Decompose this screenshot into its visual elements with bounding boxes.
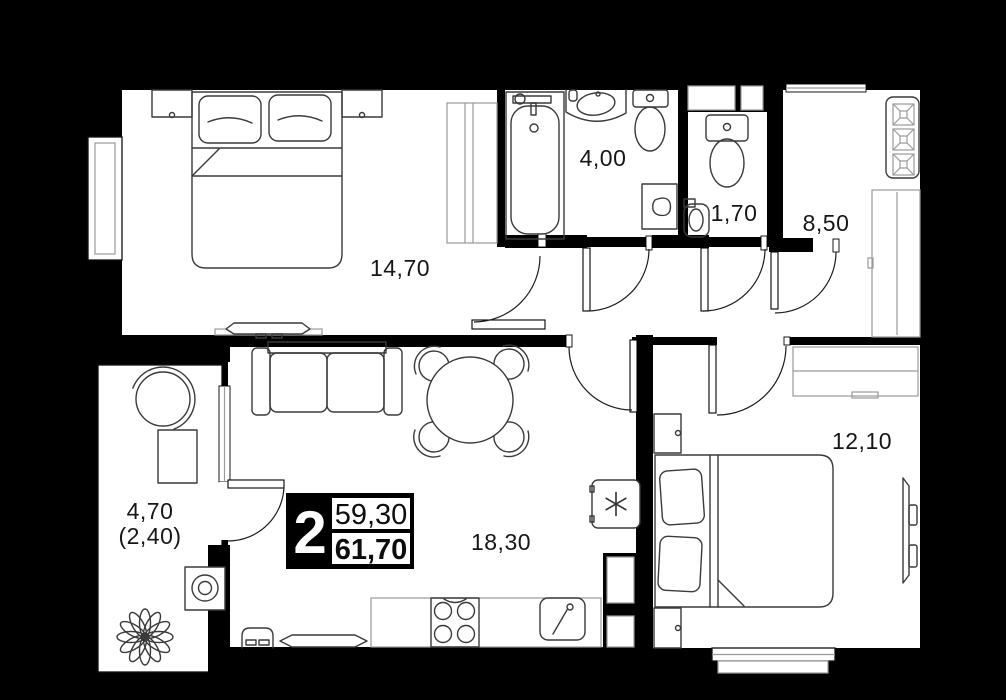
duct-box xyxy=(607,616,634,647)
tv xyxy=(280,635,367,647)
room-bedroom-2-floor xyxy=(653,345,920,648)
washing-machine xyxy=(185,567,225,610)
area-label-bathroom: 4,00 xyxy=(580,145,627,171)
area-label-kitchen: 8,50 xyxy=(803,210,850,236)
dining-table xyxy=(427,357,513,443)
living-area-value: 59,30 xyxy=(335,499,408,531)
floor-plan-canvas: 14,70 4,00 1,70 8,50 12,10 18,30 4,70 (2… xyxy=(0,0,1006,700)
area-label-wc: 1,70 xyxy=(711,200,758,226)
bedroom-1-window xyxy=(88,137,122,260)
refrigerator xyxy=(590,480,640,528)
area-label-living-room: 18,30 xyxy=(471,529,531,555)
area-label-bedroom-1: 14,70 xyxy=(370,255,430,281)
duct-box xyxy=(607,557,634,603)
apartment-info-block: 2 59,30 61,70 xyxy=(286,493,414,569)
duct-box xyxy=(688,86,735,110)
area-label-balcony-reduced: (2,40) xyxy=(118,523,181,549)
room-count: 2 xyxy=(293,499,326,566)
balcony-window-strip xyxy=(219,386,230,540)
kitchen-window xyxy=(786,84,866,92)
area-label-bedroom-2: 12,10 xyxy=(832,428,892,454)
total-area-value: 61,70 xyxy=(335,534,408,566)
bedroom-2-window xyxy=(712,648,835,673)
duct-box xyxy=(741,86,763,110)
area-label-balcony: 4,70 xyxy=(127,498,174,524)
floor-plan: 14,70 4,00 1,70 8,50 12,10 18,30 4,70 (2… xyxy=(0,0,1006,700)
